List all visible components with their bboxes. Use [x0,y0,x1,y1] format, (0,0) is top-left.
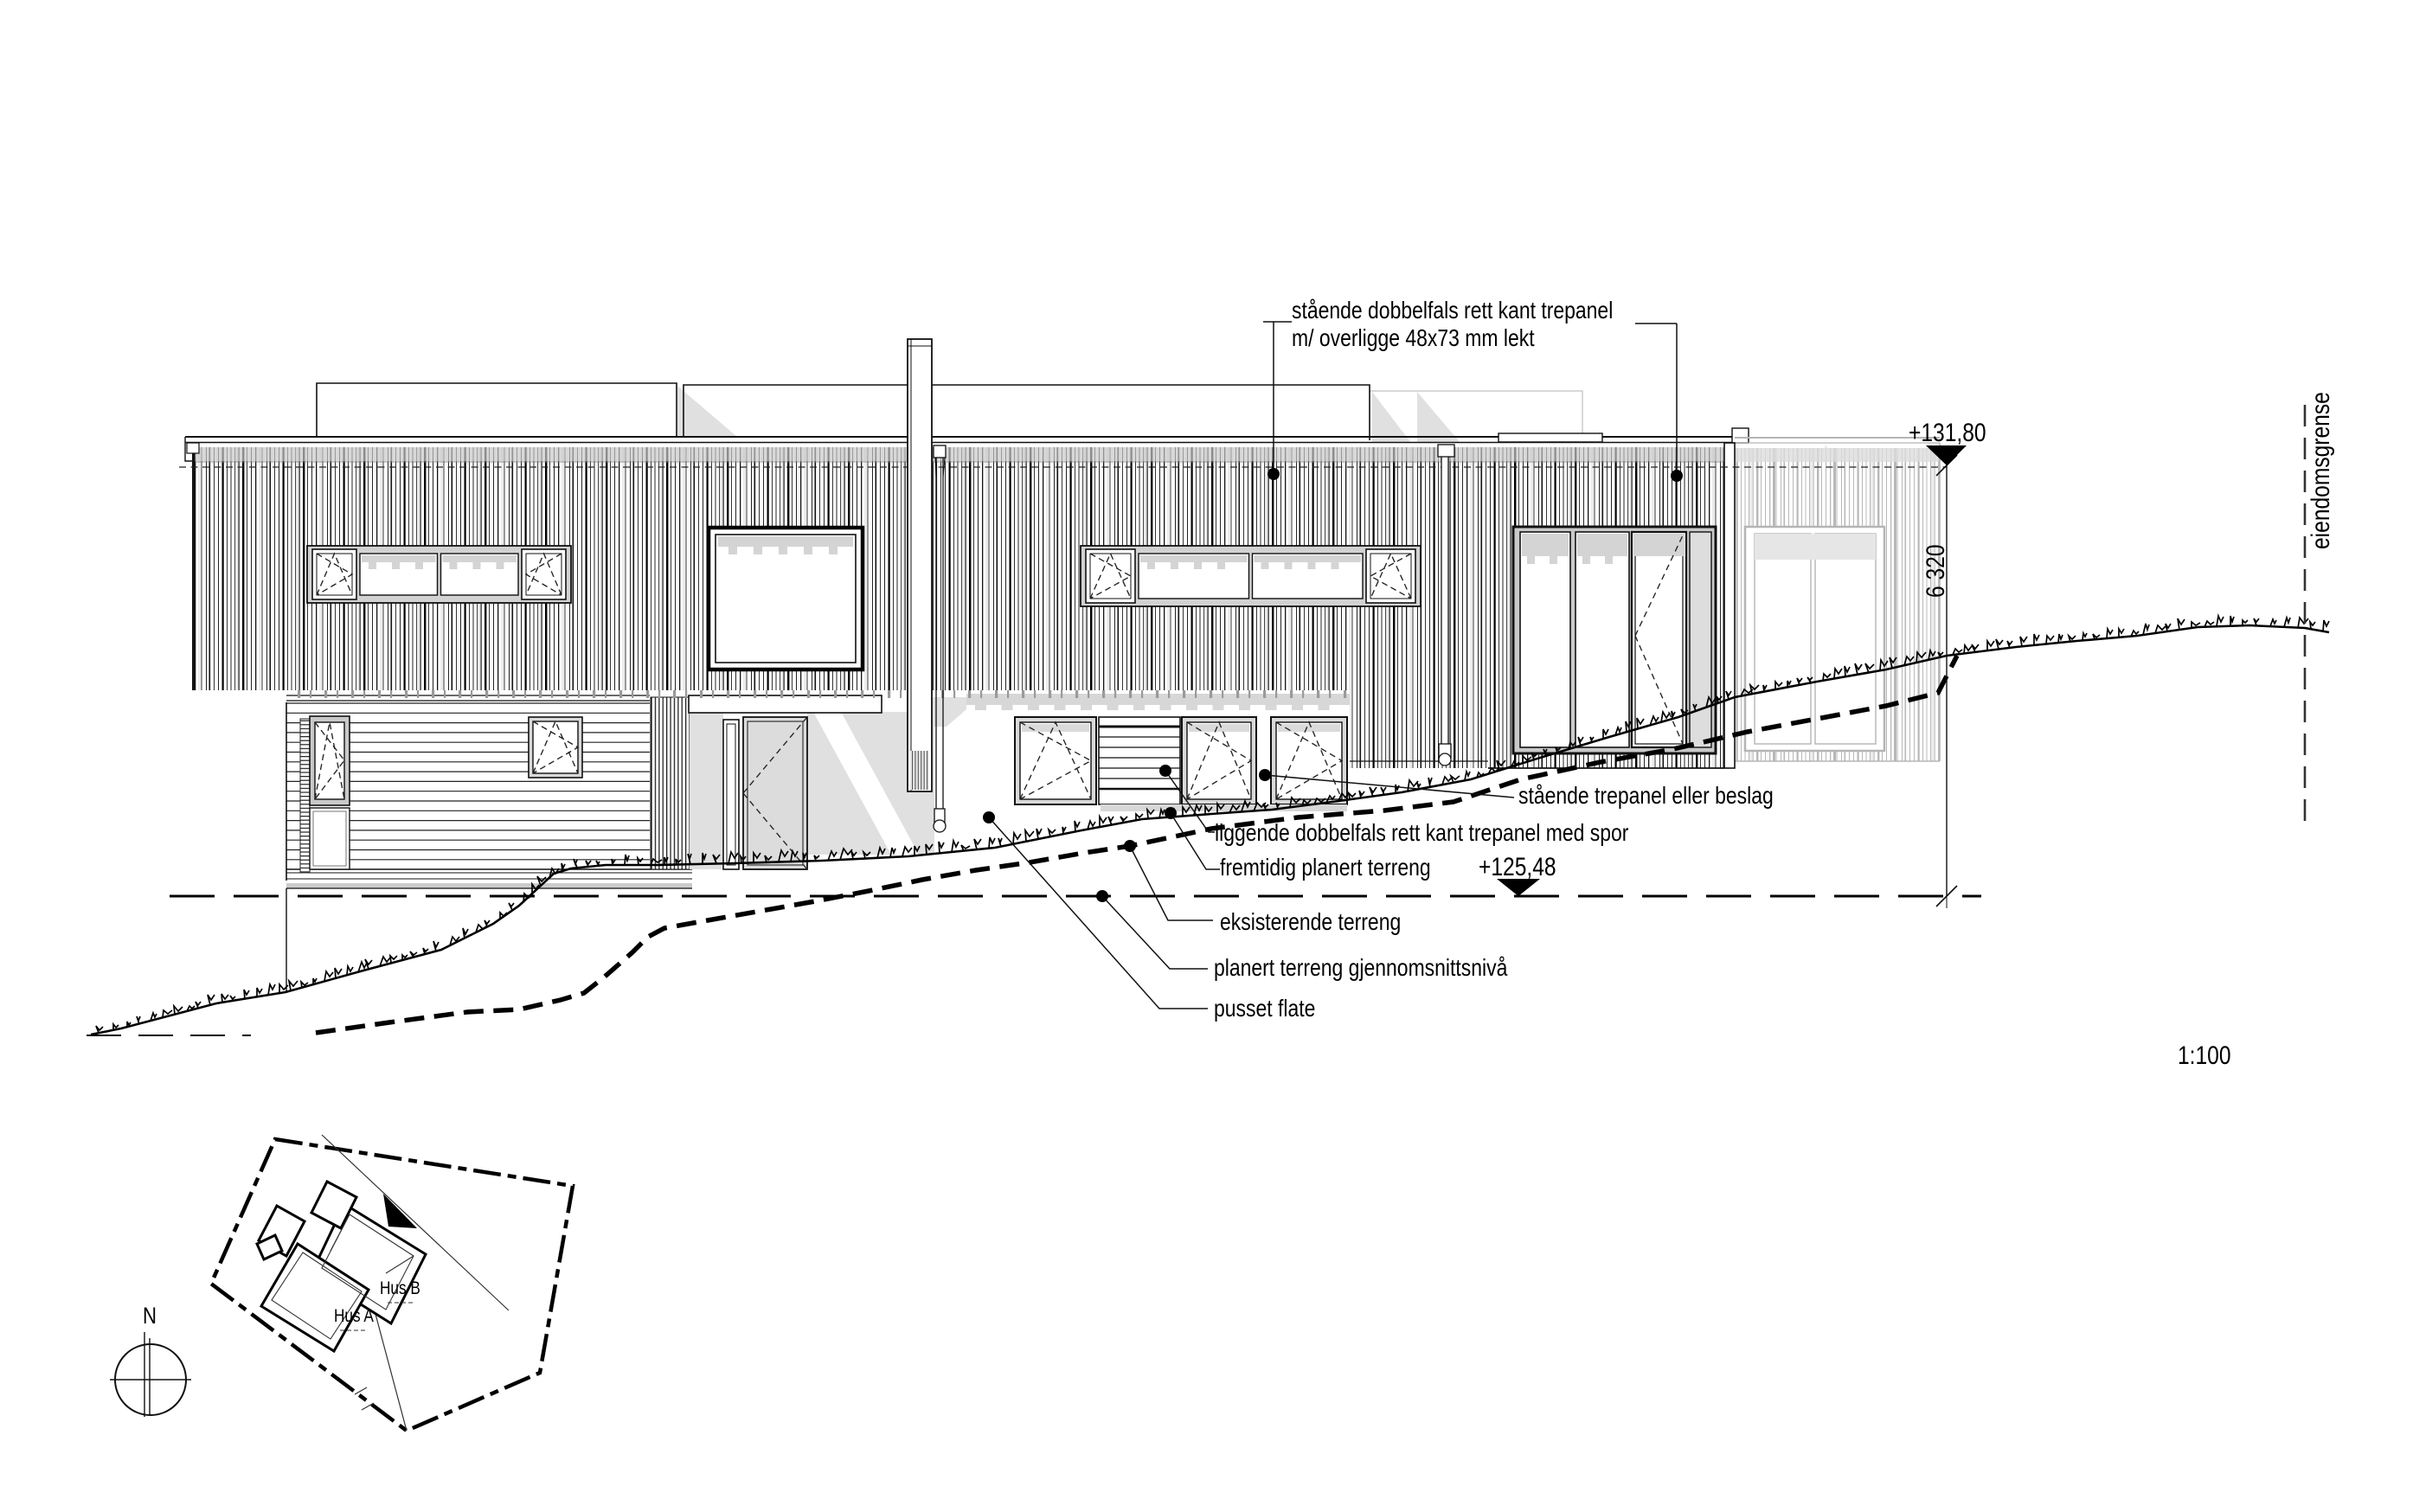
svg-text:+125,48: +125,48 [1479,852,1556,881]
svg-text:Hus A: Hus A [334,1307,374,1327]
svg-text:+131,80: +131,80 [1909,418,1986,447]
svg-text:eksisterende terreng: eksisterende terreng [1220,909,1401,936]
svg-text:m/ overligge 48x73 mm lekt: m/ overligge 48x73 mm lekt [1292,325,1535,352]
svg-text:pusset flate: pusset flate [1214,996,1315,1022]
svg-text:N: N [143,1304,157,1329]
svg-text:6 320: 6 320 [1921,544,1950,598]
svg-text:stående trepanel eller beslag: stående trepanel eller beslag [1518,783,1774,810]
svg-text:1:100: 1:100 [2178,1041,2231,1070]
svg-text:eiendomsgrense: eiendomsgrense [2306,392,2335,549]
svg-text:fremtidig planert terreng: fremtidig planert terreng [1220,855,1431,881]
svg-text:liggende dobbelfals rett kant: liggende dobbelfals rett kant trepanel m… [1215,820,1629,847]
svg-text:planert terreng gjennomsnittsn: planert terreng gjennomsnittsnivå [1214,955,1508,982]
svg-text:stående dobbelfals rett kant t: stående dobbelfals rett kant trepanel [1292,298,1613,324]
svg-text:Hus B: Hus B [380,1279,420,1299]
